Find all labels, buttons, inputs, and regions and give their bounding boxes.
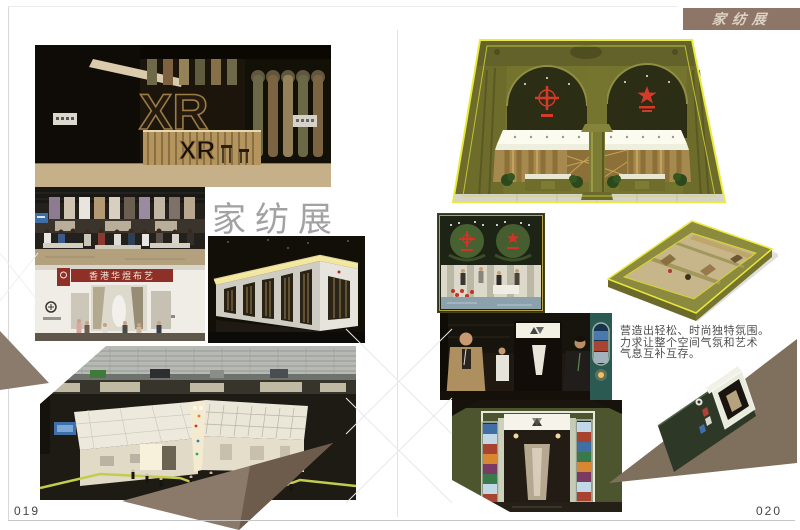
page-gutter-divider	[397, 30, 398, 517]
chapter-banner: 家纺展	[683, 8, 800, 30]
stained-glass-right	[576, 420, 592, 502]
photo-hk-fabric-booth: 香港华煜布艺	[35, 265, 205, 341]
bottom-rule	[8, 520, 795, 521]
photo-built-booth-front	[437, 213, 545, 313]
wall-sign-right	[293, 115, 317, 127]
description-line-3: 气息互补互存。	[620, 349, 795, 361]
wall-sign-left	[53, 113, 77, 125]
catalog-spread: 家纺展 家纺展 营造出轻松、时尚独特氛围。 力求让整个空间气氛和艺术 气息互补互…	[0, 0, 800, 530]
red-emblem-plate	[57, 268, 70, 286]
page-number-right: 020	[756, 504, 782, 518]
photo-white-pavilion-render	[208, 236, 365, 343]
stained-glass-left	[482, 422, 498, 504]
page-number-left: 019	[14, 504, 40, 518]
dark-green-booth-card	[658, 366, 756, 472]
description-text: 营造出轻松、时尚独特氛围。 力求让整个空间气氛和艺术 气息互补互存。	[620, 326, 795, 361]
photo-aerial-exhibition-hall	[40, 346, 356, 500]
top-page-border	[8, 6, 678, 7]
photo-exhibition-hall-crowd	[35, 187, 205, 265]
photo-booth-portal	[452, 400, 622, 512]
right-page-triangle	[609, 339, 797, 483]
fabric-columns	[251, 70, 325, 157]
xr-logo-large: XR	[139, 84, 208, 140]
photo-xr-booth-render: XR XR	[35, 45, 331, 187]
frieze-ornament	[570, 45, 602, 59]
xr-logo-desk: XR	[179, 135, 215, 165]
stained-glass-column	[590, 313, 612, 400]
photo-visitors-entrance	[440, 313, 612, 400]
left-page-border	[8, 6, 9, 521]
description-line-1: 营造出轻松、时尚独特氛围。	[620, 326, 795, 338]
chapter-banner-title: 家纺展	[710, 9, 772, 29]
render-isometric-booth	[600, 207, 778, 322]
render-arched-facade	[437, 30, 730, 207]
page-title: 家纺展	[212, 192, 341, 241]
booth-sign-text: 香港华煜布艺	[89, 270, 155, 281]
